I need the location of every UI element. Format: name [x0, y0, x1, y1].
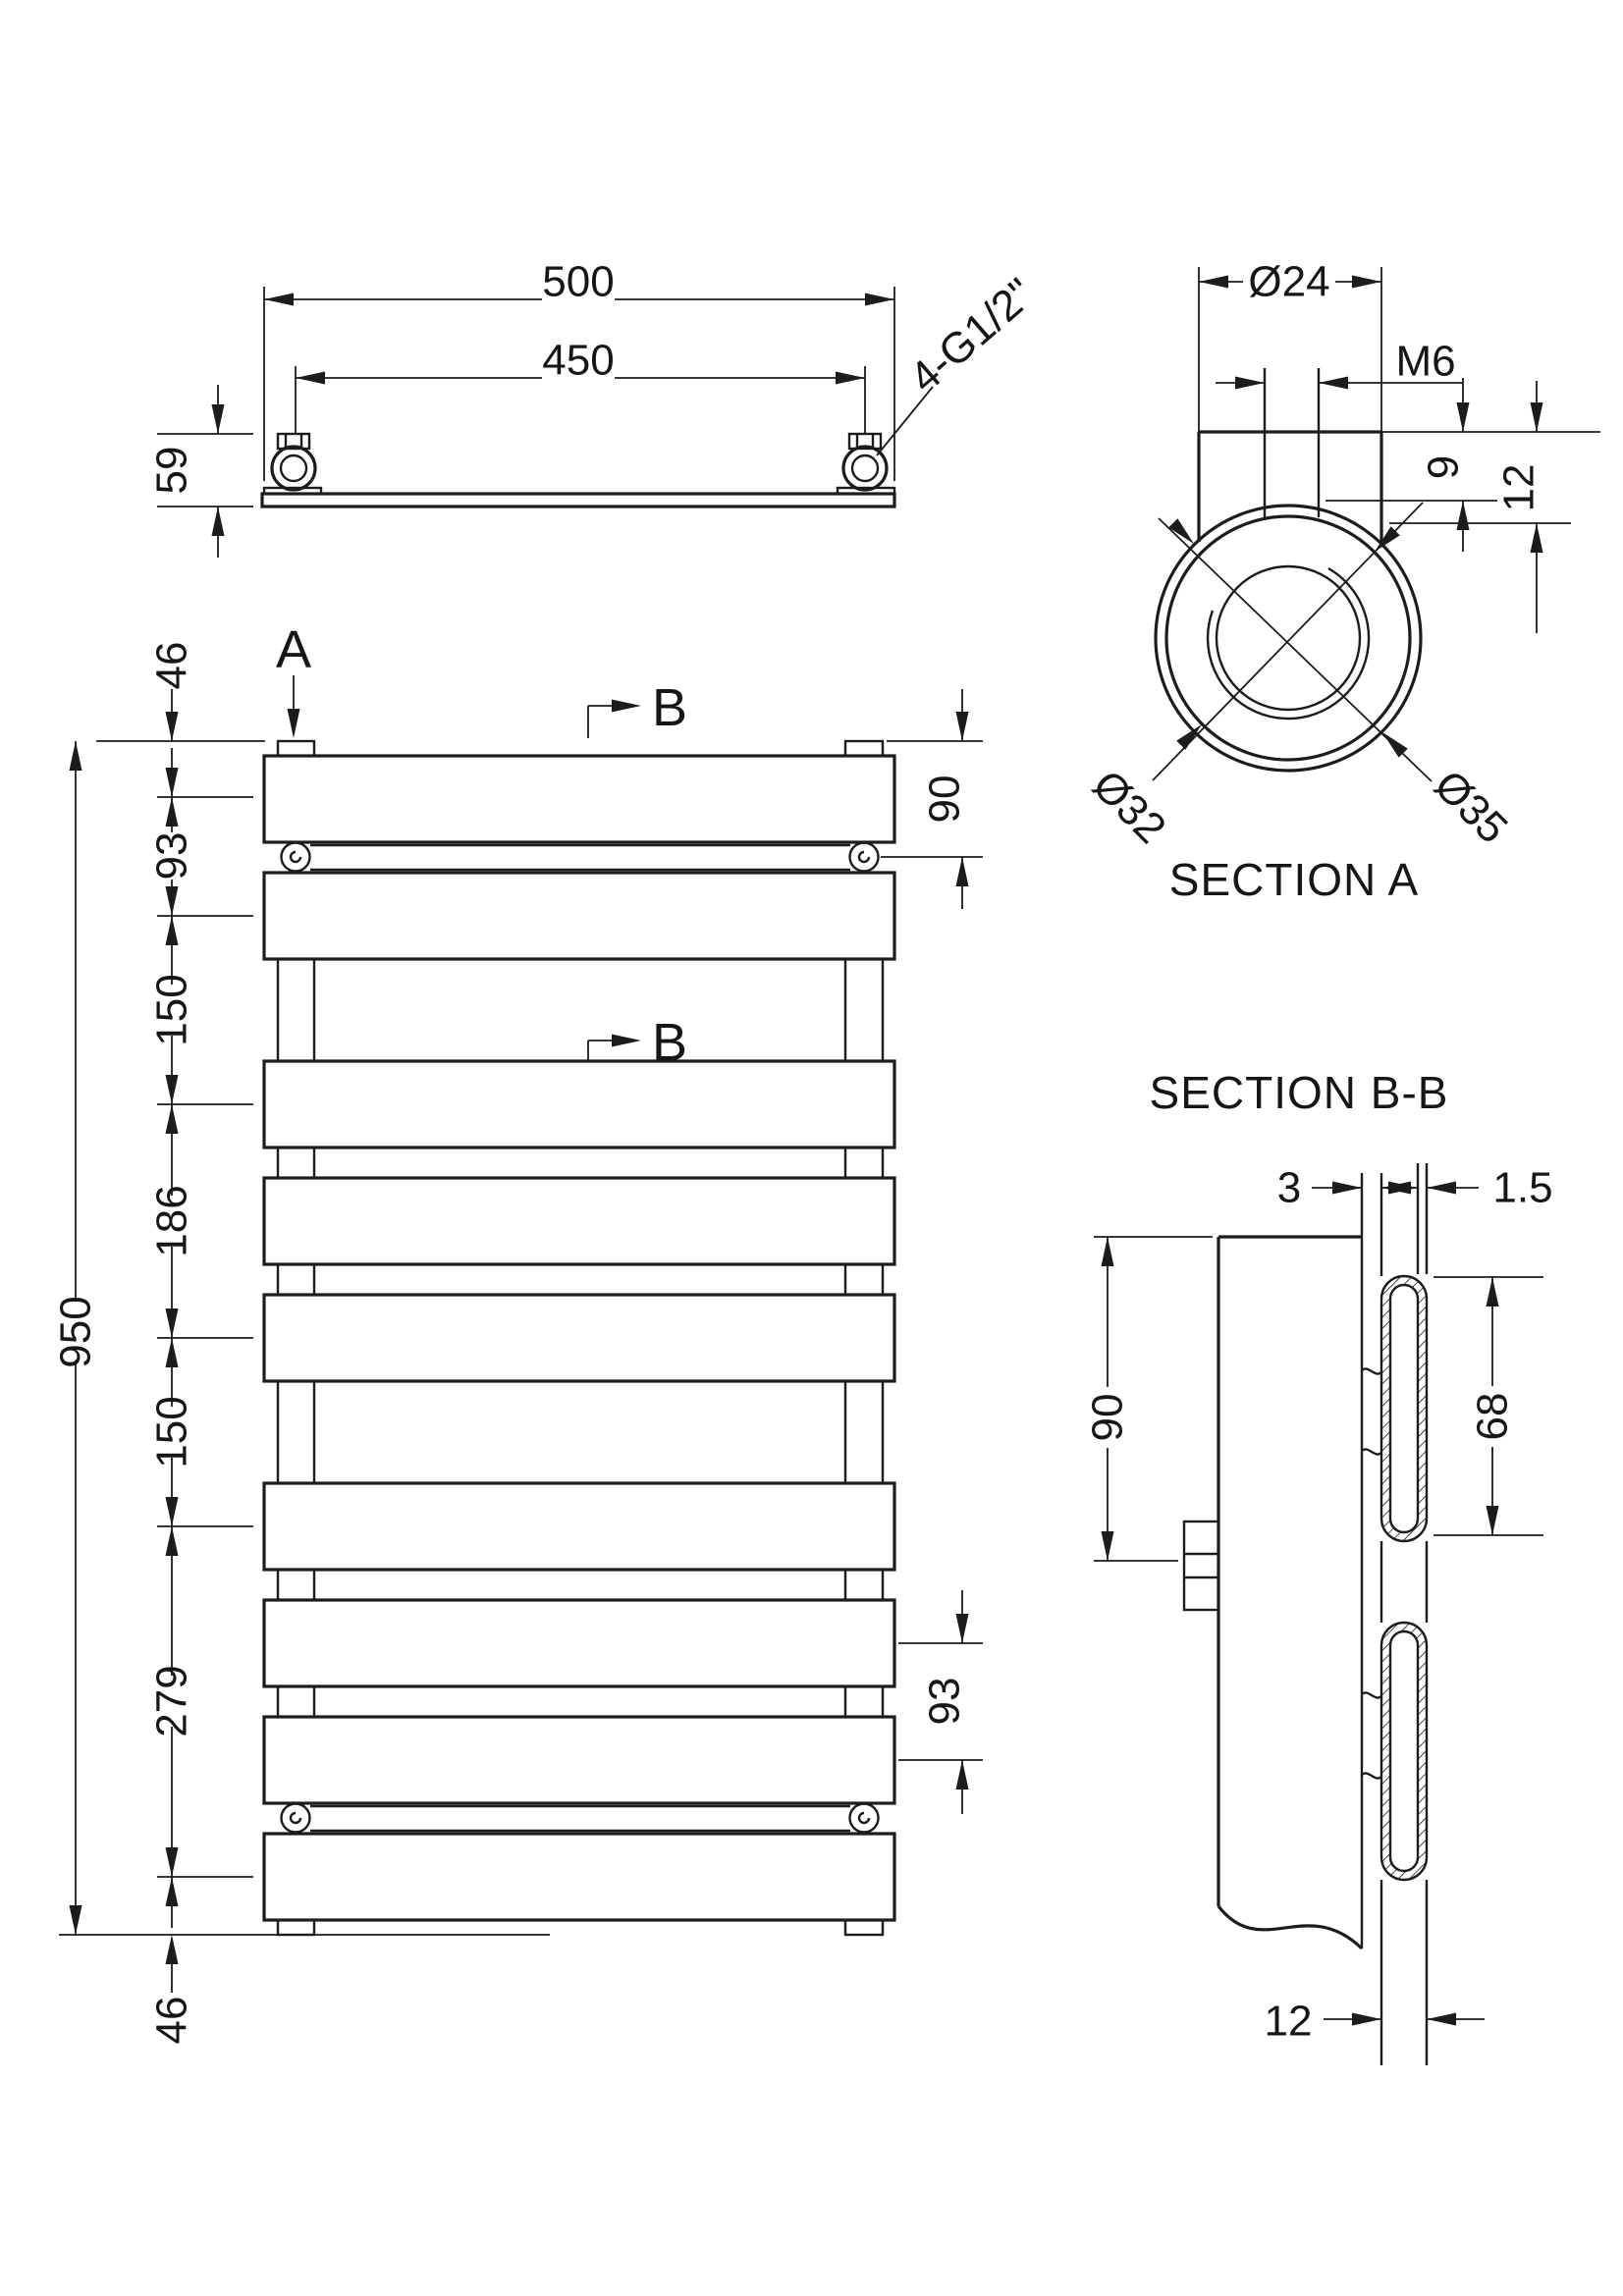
dim-90-bb-label: 90: [1084, 1394, 1132, 1442]
section-marker-a: A: [276, 620, 311, 738]
dim-12-bb-label: 12: [1265, 1998, 1313, 2046]
dim-m6-label: M6: [1395, 338, 1455, 386]
dim-d35-label: Ø35: [1425, 761, 1516, 852]
air-vent-right: [850, 843, 879, 872]
dim-93-front: 93: [898, 1590, 983, 1814]
dim-d24: Ø24: [1199, 258, 1381, 433]
chain-279: 279: [148, 1665, 196, 1736]
mounting-feet: [278, 741, 883, 1935]
dim-chain: 46 93 150 186: [148, 642, 254, 2045]
fitting-thread-label: 4-G1/2": [900, 269, 1043, 401]
dim-1-5-label: 1.5: [1492, 1164, 1552, 1212]
riser-tubes: [278, 959, 883, 1717]
section-bb-title: SECTION B-B: [1150, 1067, 1449, 1118]
dim-68-label: 68: [1469, 1393, 1517, 1441]
top-view: 500 450 59 4-G1/2": [148, 258, 1044, 559]
right-valve-fitting: [843, 434, 887, 490]
dim-90-bb: 90: [1084, 1237, 1214, 1561]
dim-m6: M6: [1216, 338, 1463, 390]
front-view: A B B 950: [52, 620, 984, 2044]
chain-93: 93: [148, 832, 196, 881]
drain-left: [282, 1804, 310, 1833]
chain-186: 186: [148, 1185, 196, 1256]
marker-b-label-2: B: [652, 1013, 687, 1072]
section-marker-b-bottom: B: [588, 1013, 687, 1072]
chain-150a: 150: [148, 974, 196, 1045]
chain-46-top: 46: [148, 642, 196, 690]
bb-tube-section-bottom: [1362, 1623, 1427, 1880]
chain-46-bottom: 46: [148, 1997, 196, 2045]
technical-drawing: 500 450 59 4-G1/2": [0, 0, 1623, 2296]
panels: [264, 756, 894, 1920]
drawing-page: 500 450 59 4-G1/2": [0, 0, 1623, 2296]
section-a: Ø24 M6 9 12: [1083, 258, 1600, 906]
break-line: [1218, 1906, 1362, 1949]
chain-150b: 150: [148, 1396, 196, 1468]
dim-d32-label: Ø32: [1083, 761, 1174, 852]
bottom-header: [282, 1804, 879, 1833]
drain-right: [850, 1804, 879, 1833]
section-a-title: SECTION A: [1169, 854, 1419, 905]
dim-9-label: 9: [1420, 455, 1468, 479]
dim-12-bb: 12: [1265, 1998, 1485, 2046]
dim-950: 950: [52, 741, 551, 1935]
top-header: [282, 843, 879, 872]
dim-68: 68: [1434, 1277, 1543, 1535]
dim-d24-label: Ø24: [1248, 258, 1329, 306]
dim-500-label: 500: [542, 258, 614, 306]
dim-59-label: 59: [148, 447, 196, 495]
top-view-bar: [262, 494, 894, 507]
fitting-thread-callout: 4-G1/2": [877, 269, 1044, 455]
dim-90-front-label: 90: [921, 775, 969, 824]
bore-circle: [1217, 566, 1360, 710]
dim-59: 59: [148, 385, 254, 558]
dim-93-front-label: 93: [921, 1678, 969, 1726]
left-valve-fitting: [272, 434, 315, 490]
dim-9: 9: [1325, 378, 1600, 552]
dim-450-label: 450: [542, 337, 614, 385]
dim-d35-leader: Ø35: [1159, 518, 1517, 853]
bb-panel: [1218, 1237, 1362, 1949]
bb-wall-bracket: [1184, 1522, 1218, 1610]
marker-a-label: A: [276, 620, 311, 679]
bb-tube-section-top: [1362, 1276, 1427, 1541]
dim-12-label: 12: [1495, 464, 1543, 512]
marker-b-label: B: [652, 678, 687, 737]
dim-12: 12: [1389, 381, 1571, 633]
dim-1-5: 1.5: [1388, 1164, 1553, 1212]
dim-d32-leader: Ø32: [1083, 503, 1423, 853]
dim-950-label: 950: [52, 1296, 100, 1367]
section-marker-b-top: B: [588, 678, 687, 738]
air-vent-left: [282, 843, 310, 872]
dim-450: 450: [296, 337, 865, 434]
section-b-b: SECTION B-B: [1084, 1067, 1553, 2065]
dim-3-label: 3: [1277, 1164, 1301, 1212]
